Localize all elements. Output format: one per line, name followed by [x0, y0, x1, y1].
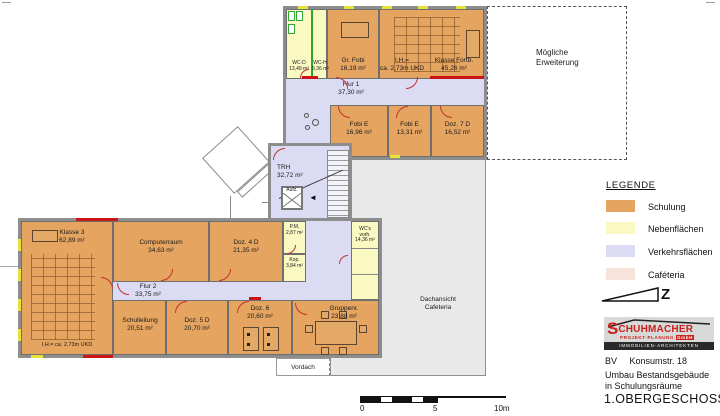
- label-aufzug: Aufz.: [283, 188, 301, 194]
- wc-partition: [352, 248, 378, 249]
- project-title-line2: in Schulungsräume: [605, 381, 682, 391]
- stairs: [327, 150, 349, 218]
- computer-icon: [247, 343, 250, 346]
- diamond-outline: [202, 126, 270, 194]
- computer-icon: [267, 343, 270, 346]
- legend-swatch-cafeteria: [606, 268, 635, 280]
- window-marker: [382, 6, 392, 9]
- label-flur-2: Flur 2 33,75 m²: [125, 283, 171, 298]
- legend-swatch-schulung: [606, 200, 635, 212]
- window-marker: [344, 6, 354, 9]
- roof-label-line1: Dachansicht: [398, 296, 478, 304]
- scale-bar-line: [436, 396, 506, 398]
- legend-swatch-verkehrsflaechen: [606, 245, 635, 257]
- computer-icon: [247, 333, 250, 336]
- label-wcs-vorh: WC's vorh. 14,36 m²: [351, 227, 379, 244]
- vordach-label: Vordach: [281, 364, 325, 372]
- legend-label-cafeteria: Caféteria: [648, 270, 685, 280]
- table: [341, 22, 369, 38]
- label-gr-fobi: Gr. Fobi 16,19 m²: [328, 57, 378, 72]
- window-marker: [18, 299, 21, 311]
- label-klasse-3: Klasse 3 62,89 m²: [47, 229, 97, 244]
- computer-desk: [263, 327, 279, 351]
- legend-label-nebenflaechen: Nebenflächen: [648, 224, 704, 234]
- label-doz-7-d: Doz. 7 D 16,52 m²: [433, 121, 482, 136]
- upper-wing: WC-D 13,49 m² WC-H 9,36 m² Gr. Fobi 16,1…: [283, 6, 487, 160]
- wc-partition: [352, 274, 378, 275]
- label-computerraum: Computerraum 34,63 m²: [121, 239, 201, 254]
- street-label: Konsumstr. 18: [630, 356, 688, 366]
- legend-heading: LEGENDE: [606, 180, 656, 191]
- label-klasse-fortb: Klasse Fortb. 45,26 m²: [426, 57, 482, 72]
- label-schulleitung: Schulleitung 20,51 m²: [115, 317, 165, 332]
- window-marker: [298, 6, 308, 9]
- project-title-line1: Umbau Bestandsgebäude: [605, 370, 709, 380]
- coat-hooks-icon: [312, 119, 319, 126]
- label-trh: TRH 32,72 m²: [277, 164, 311, 179]
- connector-line: [230, 196, 231, 220]
- direction-triangle-icon: ◄: [309, 194, 317, 202]
- scale-zero: 0: [360, 404, 364, 413]
- window-marker: [418, 6, 428, 9]
- scale-bar-segments: [360, 396, 438, 403]
- door-swing: [117, 283, 129, 295]
- window-marker: [456, 6, 466, 9]
- wc-stall: [296, 11, 303, 21]
- door-swing: [339, 255, 348, 264]
- roof-label-line2: Cafeteria: [398, 304, 478, 312]
- stairwell-block: TRH 32,72 m² Aufz. ◄: [268, 143, 352, 221]
- label-gruppenr: Gruppenr. 23,88 m²: [313, 305, 375, 320]
- lower-wing: Klasse 3 62,89 m² I.H.= ca. 2,73m UKD Co…: [18, 218, 382, 358]
- group-table: [315, 321, 357, 345]
- roof-label: Dachansicht Cafeteria: [398, 296, 478, 311]
- legend-label-schulung: Schulung: [648, 202, 686, 212]
- scale-bar: 0 5 10m: [360, 396, 508, 414]
- teacher-desk: [466, 30, 480, 58]
- chair: [321, 347, 329, 355]
- label-kop: Kop. 3,84 m²: [283, 258, 306, 269]
- floor-plan-sheet: Dachansicht Cafeteria Vordach Mögliche E…: [0, 0, 720, 416]
- window-marker: [18, 329, 21, 341]
- label-doz-5-d: Doz. 5 D 20,70 m²: [171, 317, 223, 332]
- wc-stall: [288, 11, 295, 21]
- wall-highlight: [430, 76, 484, 79]
- expansion-box: [487, 6, 627, 160]
- crop-mark: [2, 2, 11, 3]
- chair: [339, 347, 347, 355]
- label-klasse-fortb-note: I.H.= ca. 2,73m UKD: [380, 57, 424, 72]
- label-flur-1: Flur 1 37,30 m²: [326, 81, 376, 96]
- computer-icon: [267, 333, 270, 336]
- elevator: Aufz.: [281, 186, 303, 210]
- wall-highlight: [76, 218, 118, 221]
- wall-highlight: [249, 297, 261, 300]
- label-wc-h: WC-H 9,36 m²: [312, 61, 328, 72]
- floor-title: 1.OBERGESCHOSS: [604, 392, 720, 406]
- company-logo: SCHUHMACHER PROJEKT·PLANUNGGmbH IMMOBILI…: [604, 317, 714, 350]
- label-fobi-e-2: Fobi E 13,31 m²: [390, 121, 429, 136]
- window-marker: [390, 155, 400, 158]
- logo-subline: PROJEKT·PLANUNGGmbH: [620, 335, 694, 340]
- north-letter: Z: [661, 286, 670, 303]
- label-klasse-3-note: I.H.= ca. 2,73m UKD: [25, 343, 109, 349]
- label-doz-4-d: Doz. 4 D 21,35 m²: [217, 239, 275, 254]
- window-marker: [18, 269, 21, 281]
- coat-hooks-icon: [305, 125, 310, 130]
- logo-banner: IMMOBILIEN-ARCHITEKTEN: [604, 342, 714, 350]
- window-marker: [18, 239, 21, 251]
- wall-highlight: [83, 355, 113, 358]
- computer-desk: [243, 327, 259, 351]
- wc-stall: [288, 24, 295, 34]
- window-marker: [31, 355, 43, 358]
- label-pm: P.M. 2,87 m²: [283, 225, 306, 236]
- scale-ten: 10m: [494, 404, 510, 413]
- label-fobi-e-1: Fobi E 16,96 m²: [332, 121, 386, 136]
- project-number-line: BV Konsumstr. 18: [605, 356, 687, 366]
- legend-swatch-nebenflaechen: [606, 222, 635, 234]
- desk-grid: [31, 254, 95, 340]
- door-swing: [406, 77, 418, 89]
- chair: [305, 325, 313, 333]
- elevator-x-icon: [283, 193, 301, 207]
- crop-mark: [706, 2, 715, 3]
- scale-five: 5: [433, 404, 437, 413]
- expansion-label: Mögliche Erweiterung: [536, 48, 594, 67]
- chair: [359, 325, 367, 333]
- coat-hooks-icon: [304, 113, 309, 118]
- bv-label: BV: [605, 356, 617, 366]
- label-wc-d: WC-D 13,49 m²: [284, 61, 314, 72]
- legend-label-verkehrsflaechen: Verkehrsflächen: [648, 247, 713, 257]
- north-arrow: Z: [600, 286, 680, 306]
- door-swing: [273, 148, 285, 160]
